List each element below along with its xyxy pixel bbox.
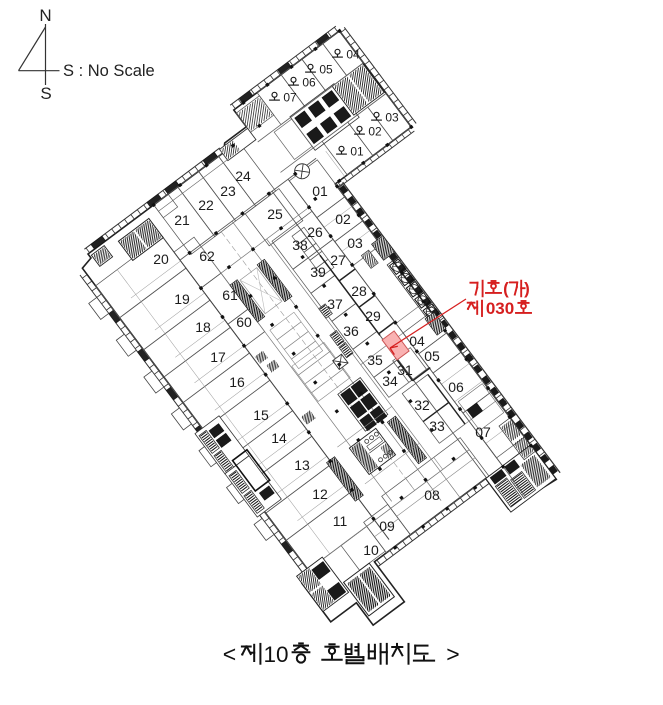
svg-text:02: 02	[368, 125, 382, 139]
svg-text:61: 61	[222, 287, 238, 303]
svg-text:20: 20	[153, 251, 169, 267]
svg-text:21: 21	[174, 212, 190, 228]
svg-text:(: (	[503, 279, 509, 298]
svg-text:<: <	[223, 641, 236, 667]
svg-text:01: 01	[312, 183, 328, 199]
svg-text:18: 18	[195, 319, 211, 335]
svg-text:15: 15	[253, 407, 269, 423]
svg-text:34: 34	[382, 373, 398, 389]
svg-text:09: 09	[379, 518, 395, 534]
svg-text:31: 31	[397, 362, 413, 378]
svg-text:): )	[524, 279, 530, 298]
svg-text:S: S	[40, 84, 51, 103]
svg-text:07: 07	[475, 424, 491, 440]
svg-text:02: 02	[335, 211, 351, 227]
svg-text:030: 030	[486, 299, 514, 318]
svg-text:10: 10	[263, 642, 288, 667]
svg-text:32: 32	[414, 397, 430, 413]
svg-text:37: 37	[327, 296, 343, 312]
svg-text:01: 01	[350, 145, 364, 159]
svg-text:24: 24	[235, 168, 251, 184]
svg-text:38: 38	[292, 237, 308, 253]
svg-text:>: >	[446, 641, 459, 667]
svg-text:11: 11	[333, 513, 348, 529]
svg-text:26: 26	[307, 224, 323, 240]
svg-text:06: 06	[448, 379, 464, 395]
svg-text:03: 03	[385, 111, 399, 125]
svg-text:05: 05	[424, 348, 440, 364]
svg-text:12: 12	[312, 486, 328, 502]
svg-text:28: 28	[351, 283, 367, 299]
svg-text:17: 17	[210, 349, 226, 365]
svg-text:08: 08	[424, 487, 440, 503]
svg-text:23: 23	[220, 183, 236, 199]
svg-text:22: 22	[198, 197, 214, 213]
svg-text:06: 06	[302, 76, 316, 90]
svg-text:05: 05	[319, 63, 333, 77]
svg-text:39: 39	[310, 264, 326, 280]
svg-text:62: 62	[199, 248, 215, 264]
svg-text:27: 27	[330, 252, 346, 268]
svg-text:14: 14	[271, 430, 287, 446]
svg-text:33: 33	[429, 418, 445, 434]
svg-text:19: 19	[174, 291, 190, 307]
svg-text:04: 04	[409, 333, 425, 349]
svg-text:29: 29	[365, 308, 381, 324]
svg-text:35: 35	[367, 352, 383, 368]
svg-text:60: 60	[236, 314, 252, 330]
svg-text:36: 36	[343, 323, 359, 339]
svg-text:16: 16	[229, 374, 245, 390]
svg-text:13: 13	[294, 457, 310, 473]
svg-text:N: N	[39, 6, 51, 25]
svg-text:07: 07	[283, 91, 297, 105]
svg-text:04: 04	[346, 48, 360, 62]
svg-text:S : No Scale: S : No Scale	[63, 62, 155, 80]
svg-text:10: 10	[363, 542, 379, 558]
svg-text:03: 03	[347, 235, 363, 251]
svg-text:25: 25	[267, 206, 283, 222]
